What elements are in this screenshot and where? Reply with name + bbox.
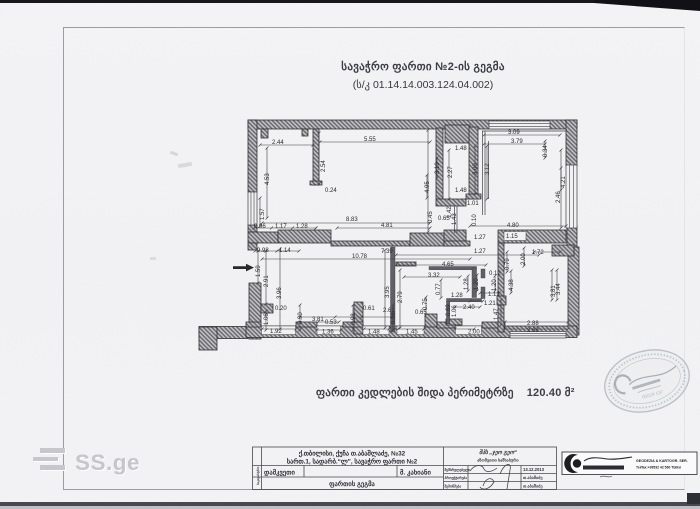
- svg-text:შემოწმება: შემოწმება: [445, 485, 462, 489]
- svg-text:GEODEZIA & KARTOGR. SER.: GEODEZIA & KARTOGR. SER.: [636, 459, 688, 463]
- svg-text:შემსრულებელი: შემსრულებელი: [445, 468, 471, 472]
- svg-text:აზომვითი სამსახური: აზომვითი სამსახური: [477, 458, 518, 464]
- svg-text:შპს „ჯეო გეო“: შპს „ჯეო გეო“: [479, 449, 517, 456]
- svg-text:თ.აბაშიძე: თ.აბაშიძე: [523, 475, 543, 481]
- svg-text:სართ.1, სადარბ.“ლ”, სავაჭრო ფა: სართ.1, სადარბ.“ლ”, სავაჭრო ფართი №2: [287, 458, 418, 466]
- svg-text:თ.აბაშიძე: თ.აბაშიძე: [523, 484, 543, 490]
- svg-text:ქ.თბილისი, ქუჩა თ.აბაშლაძე, №3: ქ.თბილისი, ქუჩა თ.აბაშლაძე, №32: [299, 450, 406, 458]
- svg-text:საკადასტრო: საკადასტრო: [256, 466, 260, 485]
- svg-text:პროექტირება: პროექტირება: [445, 476, 468, 480]
- svg-text:მ. კახიანი: მ. კახიანი: [400, 469, 431, 477]
- svg-text:13.12.2013: 13.12.2013: [523, 467, 545, 472]
- svg-text:დამკვეთი: დამკვეთი: [264, 469, 296, 477]
- svg-text:ფართის გეგმა: ფართის გეგმა: [329, 480, 375, 488]
- svg-text:Tel/fax:+99532 42 560 Tbilisi: Tel/fax:+99532 42 560 Tbilisi: [636, 466, 681, 470]
